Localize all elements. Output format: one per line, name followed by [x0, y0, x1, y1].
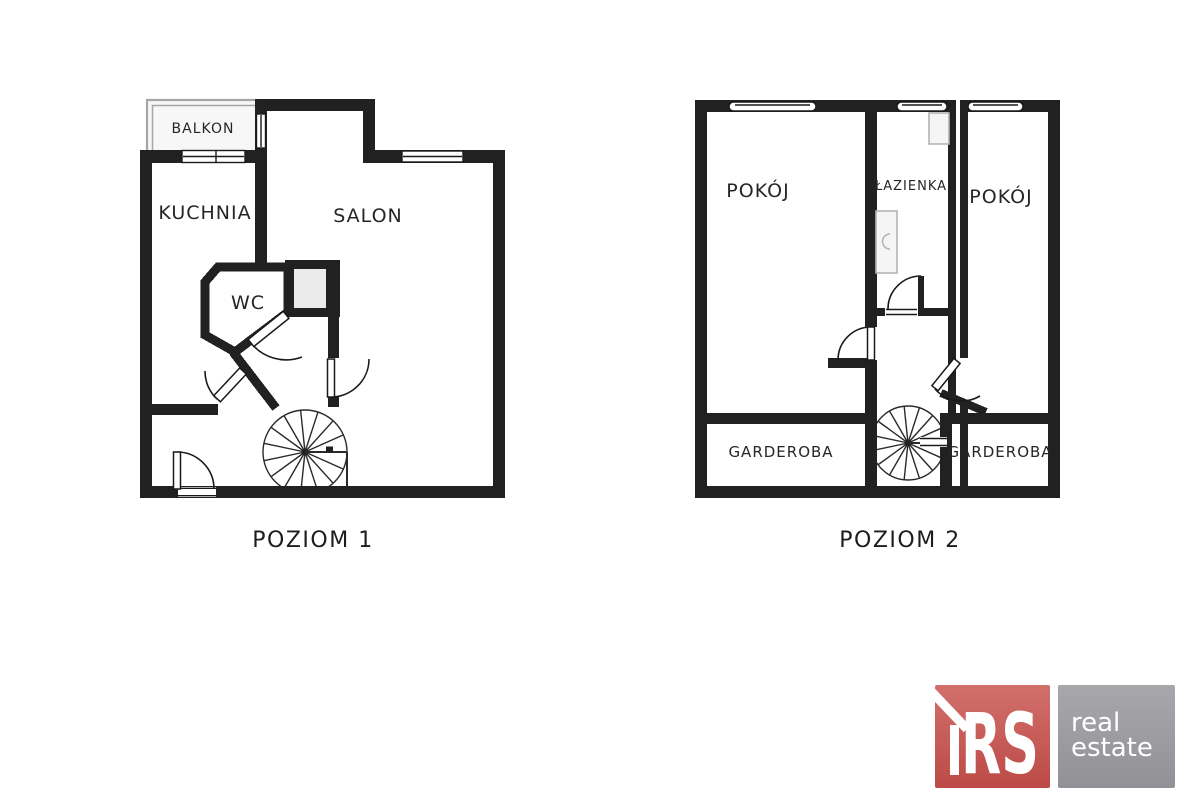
level-2-caption: POZIOM 2: [839, 528, 960, 553]
logo-brand-tile: RS: [935, 685, 1050, 788]
door-bathroom: [886, 276, 924, 315]
door-salon: [328, 359, 370, 397]
window-room-left: [729, 102, 816, 111]
logo: RS real estate: [935, 685, 1175, 788]
double-wall-gap: [956, 100, 960, 355]
level-1-caption: POZIOM 1: [252, 528, 373, 553]
washbasin: [929, 113, 949, 144]
room-label-wardrobe-right: GARDEROBA: [947, 443, 1052, 461]
walls-level-2: [695, 100, 1060, 498]
logo-tagline-tile: real estate: [1058, 685, 1175, 788]
room-label-left: POKÓJ: [726, 178, 789, 202]
room-label-bathroom: ŁAZIENKA: [874, 179, 947, 194]
room-label-right: POKÓJ: [969, 184, 1032, 208]
room-label-balcony: BALKON: [172, 121, 235, 137]
window-room-right: [968, 102, 1023, 111]
stair-newel: [326, 447, 333, 453]
window-bathroom: [897, 102, 947, 111]
room-label-wc: WC: [231, 292, 265, 314]
door-kitchen-hall: [205, 368, 246, 402]
balcony-door-window: [257, 114, 266, 148]
room-label-wardrobe-left: GARDEROBA: [728, 443, 833, 461]
floor-plans-canvas: BALKON KUCHNIA SALON WC POZIOM 1: [0, 0, 1200, 800]
room-label-kitchen: KUCHNIA: [158, 202, 251, 224]
stair-threshold: [920, 437, 947, 447]
window-kitchen-balcony: [182, 151, 245, 163]
logo-brand-text: RS: [961, 695, 1039, 788]
shaft-interior: [294, 269, 326, 308]
floor-plan-level-2: POKÓJ ŁAZIENKA POKÓJ GARDEROBA GARDEROBA…: [695, 100, 1060, 553]
door-entry: [174, 452, 217, 497]
bathtub: [876, 211, 897, 273]
logo-tagline-line2: estate: [1071, 736, 1175, 761]
room-label-living-room: SALON: [333, 205, 403, 227]
floor-plan-level-1: BALKON KUCHNIA SALON WC POZIOM 1: [140, 99, 505, 553]
door-room-left: [838, 327, 875, 360]
window-salon: [402, 151, 463, 162]
